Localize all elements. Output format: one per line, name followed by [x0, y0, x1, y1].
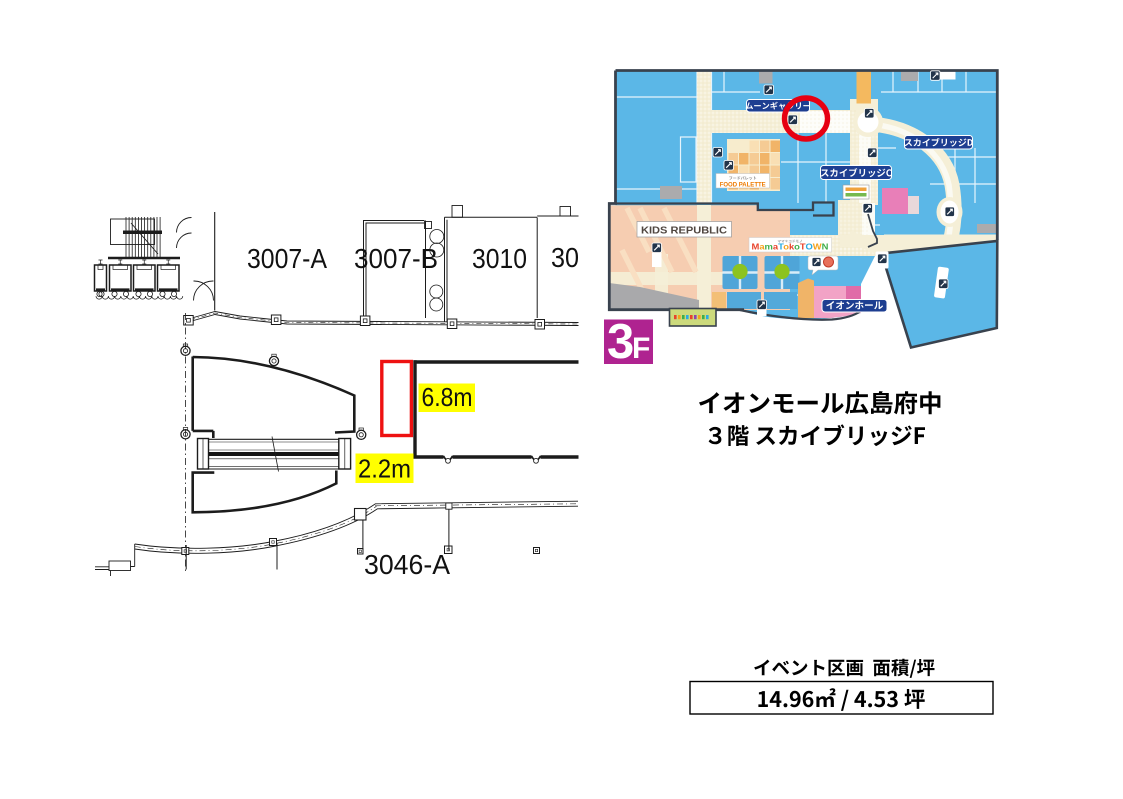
- svg-text:30: 30: [551, 242, 579, 273]
- svg-text:F: F: [632, 332, 650, 365]
- svg-text:3007-B: 3007-B: [354, 243, 438, 274]
- svg-text:2.2m: 2.2m: [358, 454, 411, 484]
- svg-text:6.8m: 6.8m: [422, 382, 473, 412]
- svg-text:3: 3: [607, 315, 634, 369]
- svg-text:3046-A: 3046-A: [364, 549, 450, 580]
- svg-text:3010: 3010: [472, 243, 527, 274]
- svg-text:KIDS REPUBLIC: KIDS REPUBLIC: [641, 226, 727, 237]
- svg-text:MamaTokoTOWN: MamaTokoTOWN: [752, 242, 829, 252]
- svg-text:FOOD PALETTE: FOOD PALETTE: [720, 182, 766, 189]
- svg-text:3007-A: 3007-A: [247, 243, 327, 274]
